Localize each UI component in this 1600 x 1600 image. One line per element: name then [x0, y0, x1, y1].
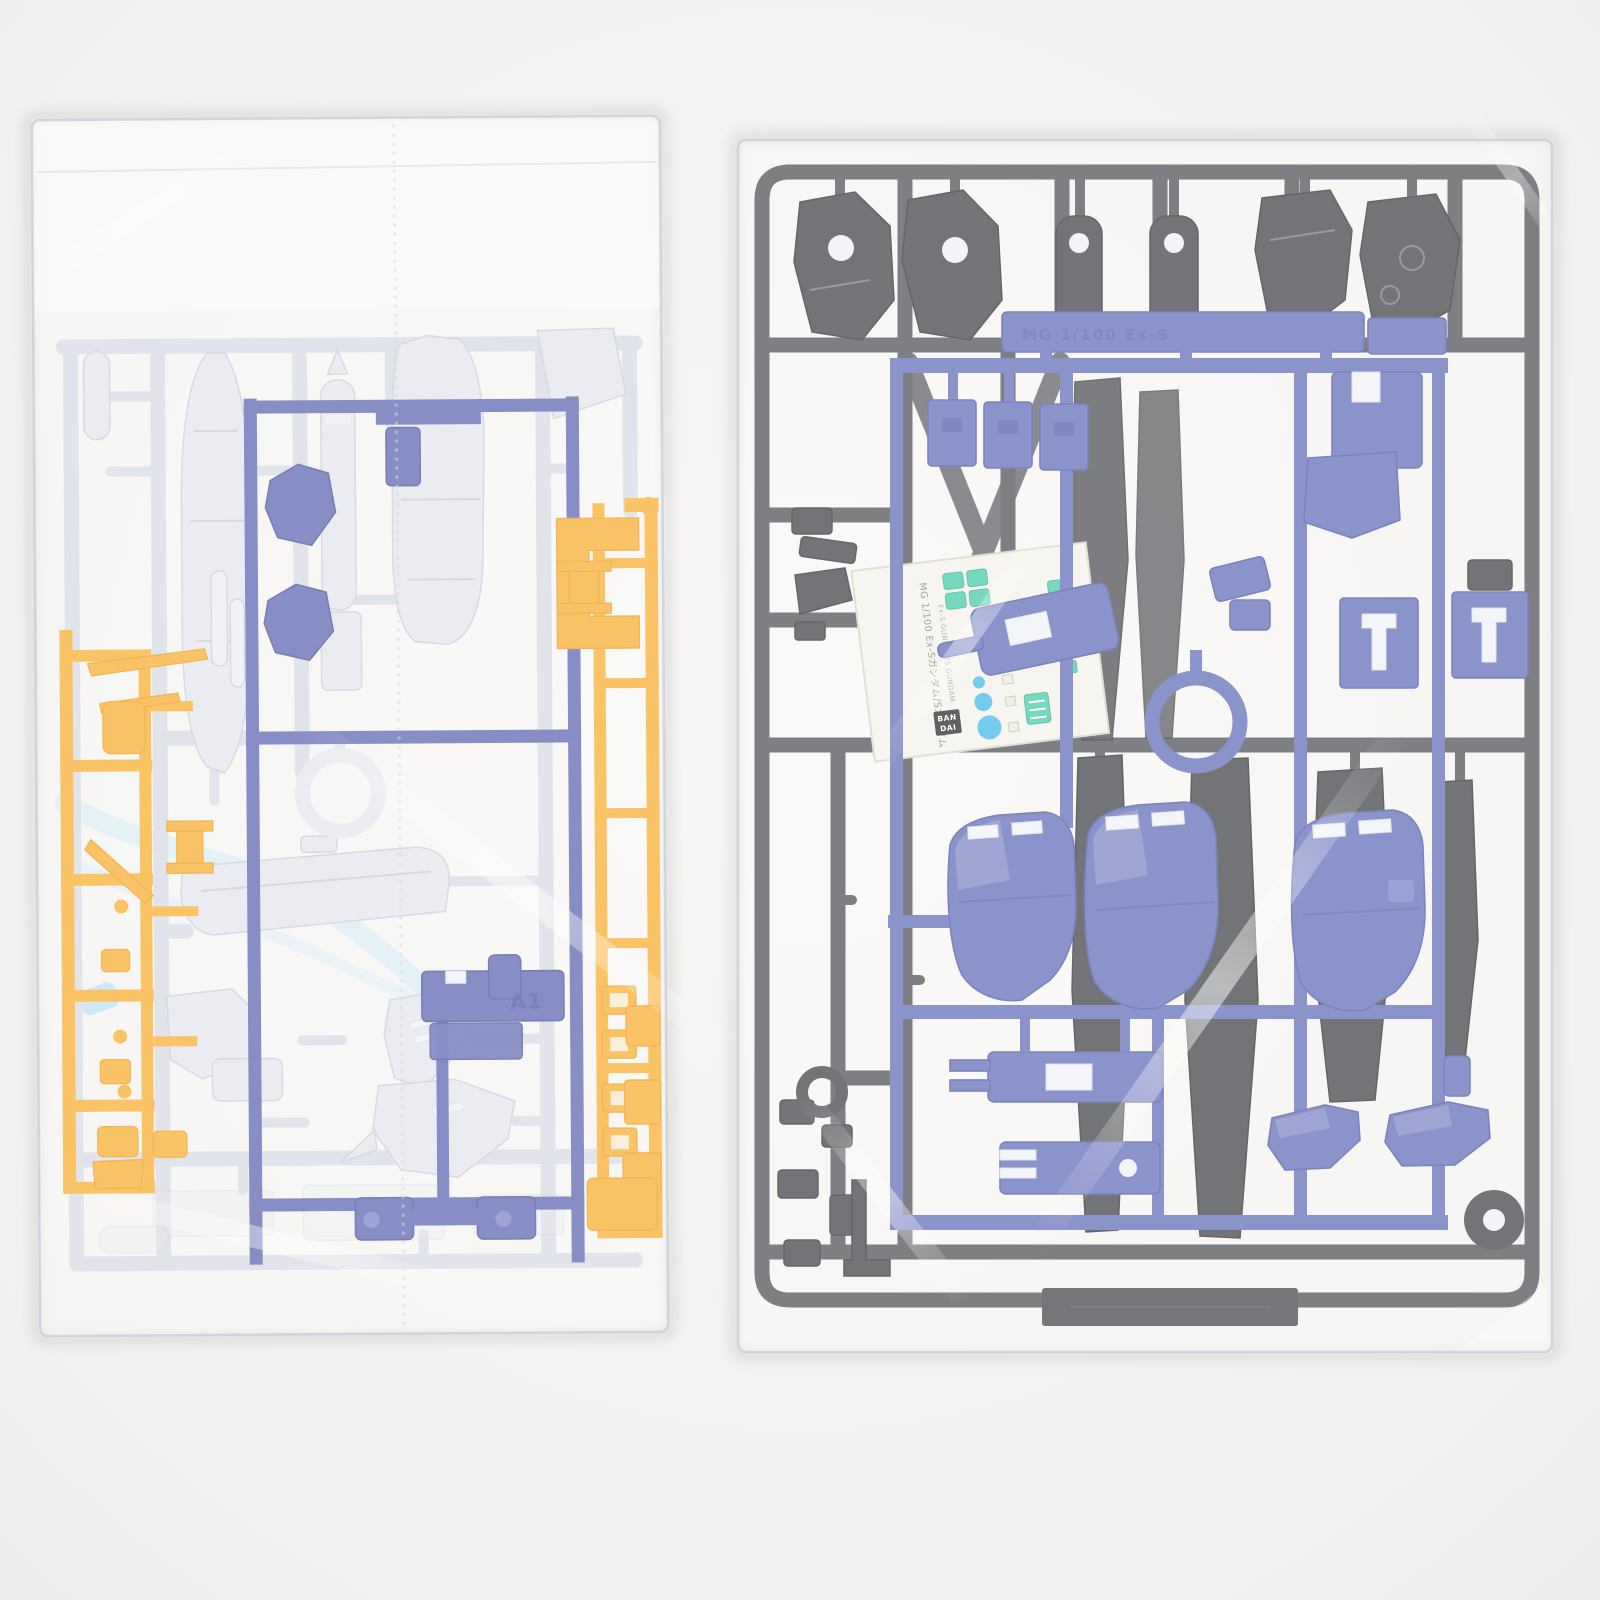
right-bag: MG 1/100 Ex-Sガンダム/Sガンダム Ex-S GUNDAM/S GU…: [734, 97, 1571, 1356]
left-bag: A1: [28, 111, 759, 1340]
product-photo: A1: [0, 0, 1600, 1600]
photo-canvas: A1: [0, 0, 1600, 1600]
